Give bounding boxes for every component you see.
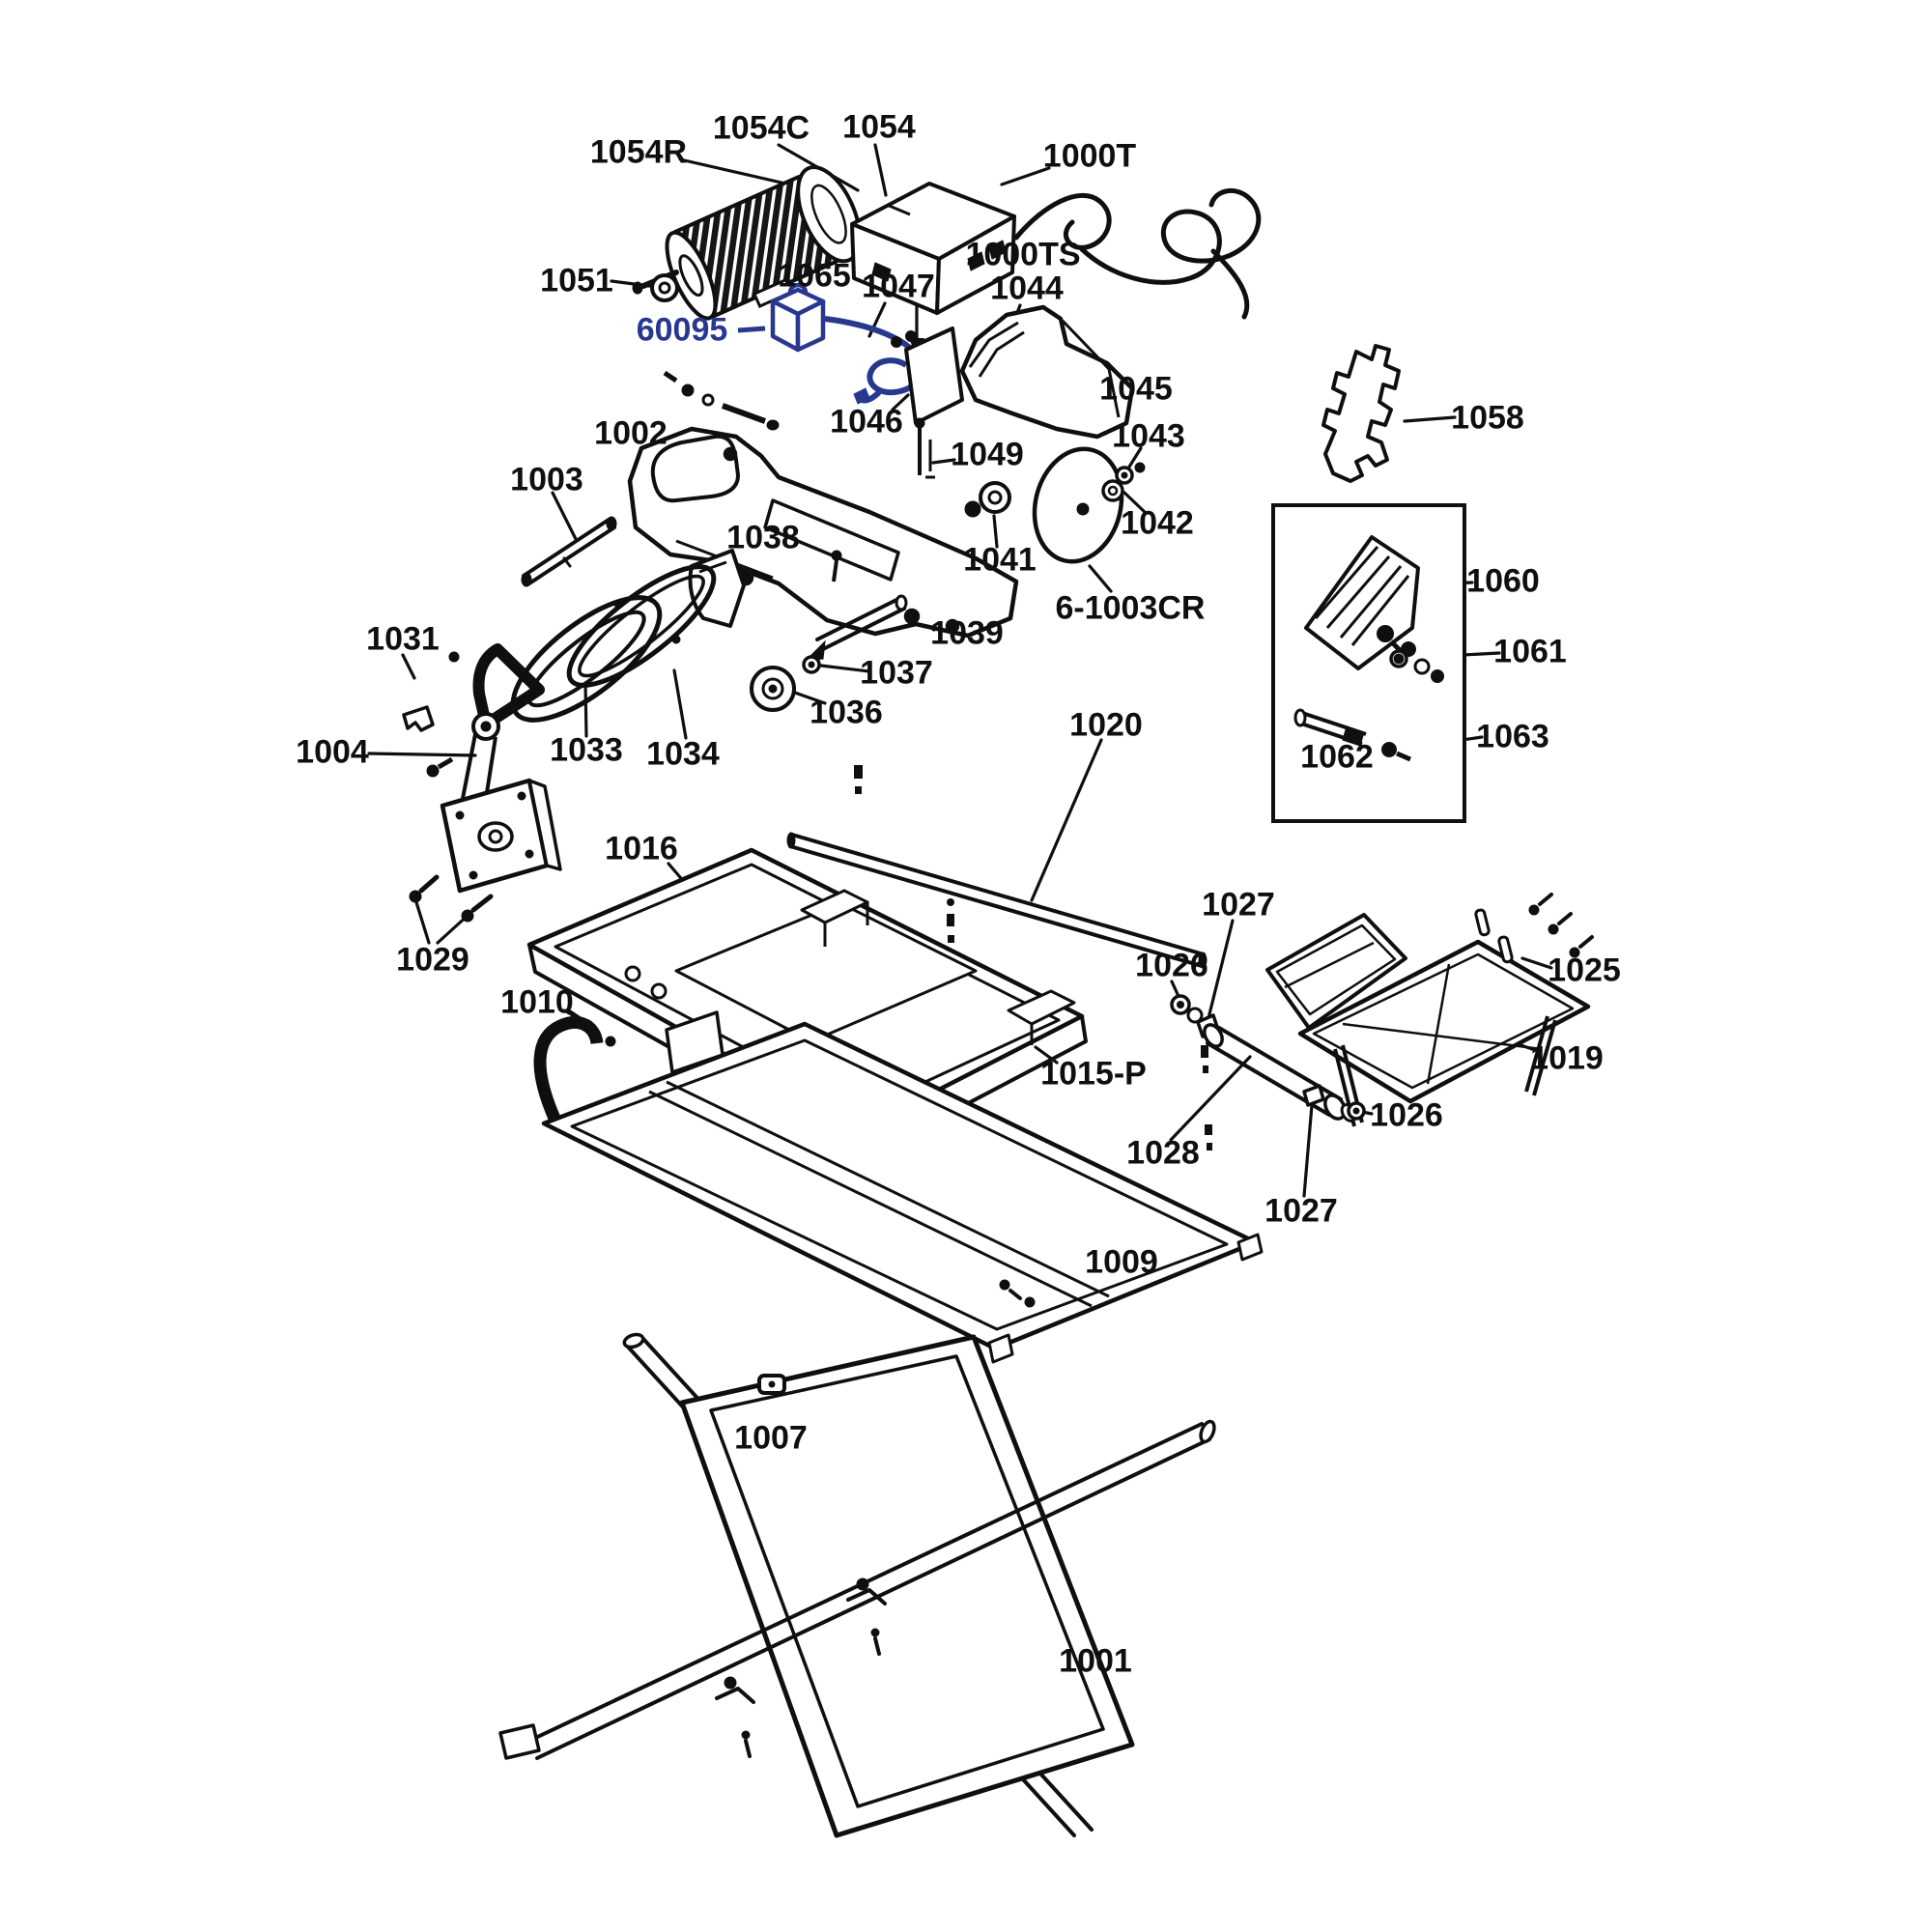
exploded-parts-diagram: 1054C10541054R1000T1000TS105110656009510… [0,0,1932,1932]
pulley-1036 [752,668,794,710]
carriage-1002 [630,429,1016,636]
blade-wrench-1058 [1323,346,1399,481]
bolt [427,759,452,777]
blade-6-1003cr [1023,440,1133,571]
clip-1027-right [1304,1086,1323,1105]
folding-stand-1001 [500,1332,1217,1835]
washer-1042 [1103,481,1122,500]
diagram-line-art [0,0,1932,1932]
handle-assembly-1004 [427,649,560,891]
pins-1049 [915,418,935,477]
power-cord-1000t [1016,190,1259,317]
nut-1037 [804,657,819,672]
motor-1054r [633,158,874,333]
nut-1026-right [1349,1103,1364,1119]
blade-guard-1045 [962,307,1132,437]
cap-1007 [759,1376,784,1393]
accessory-box [1273,505,1464,821]
screw-1061 [1391,651,1406,667]
washers-1041 [965,483,1009,517]
nut-1026-left [1172,996,1202,1022]
shaft-washer-1051 [652,275,677,300]
clip-1031 [404,707,433,730]
screws-1046 [665,373,779,430]
switch-box-1054 [852,184,1014,313]
